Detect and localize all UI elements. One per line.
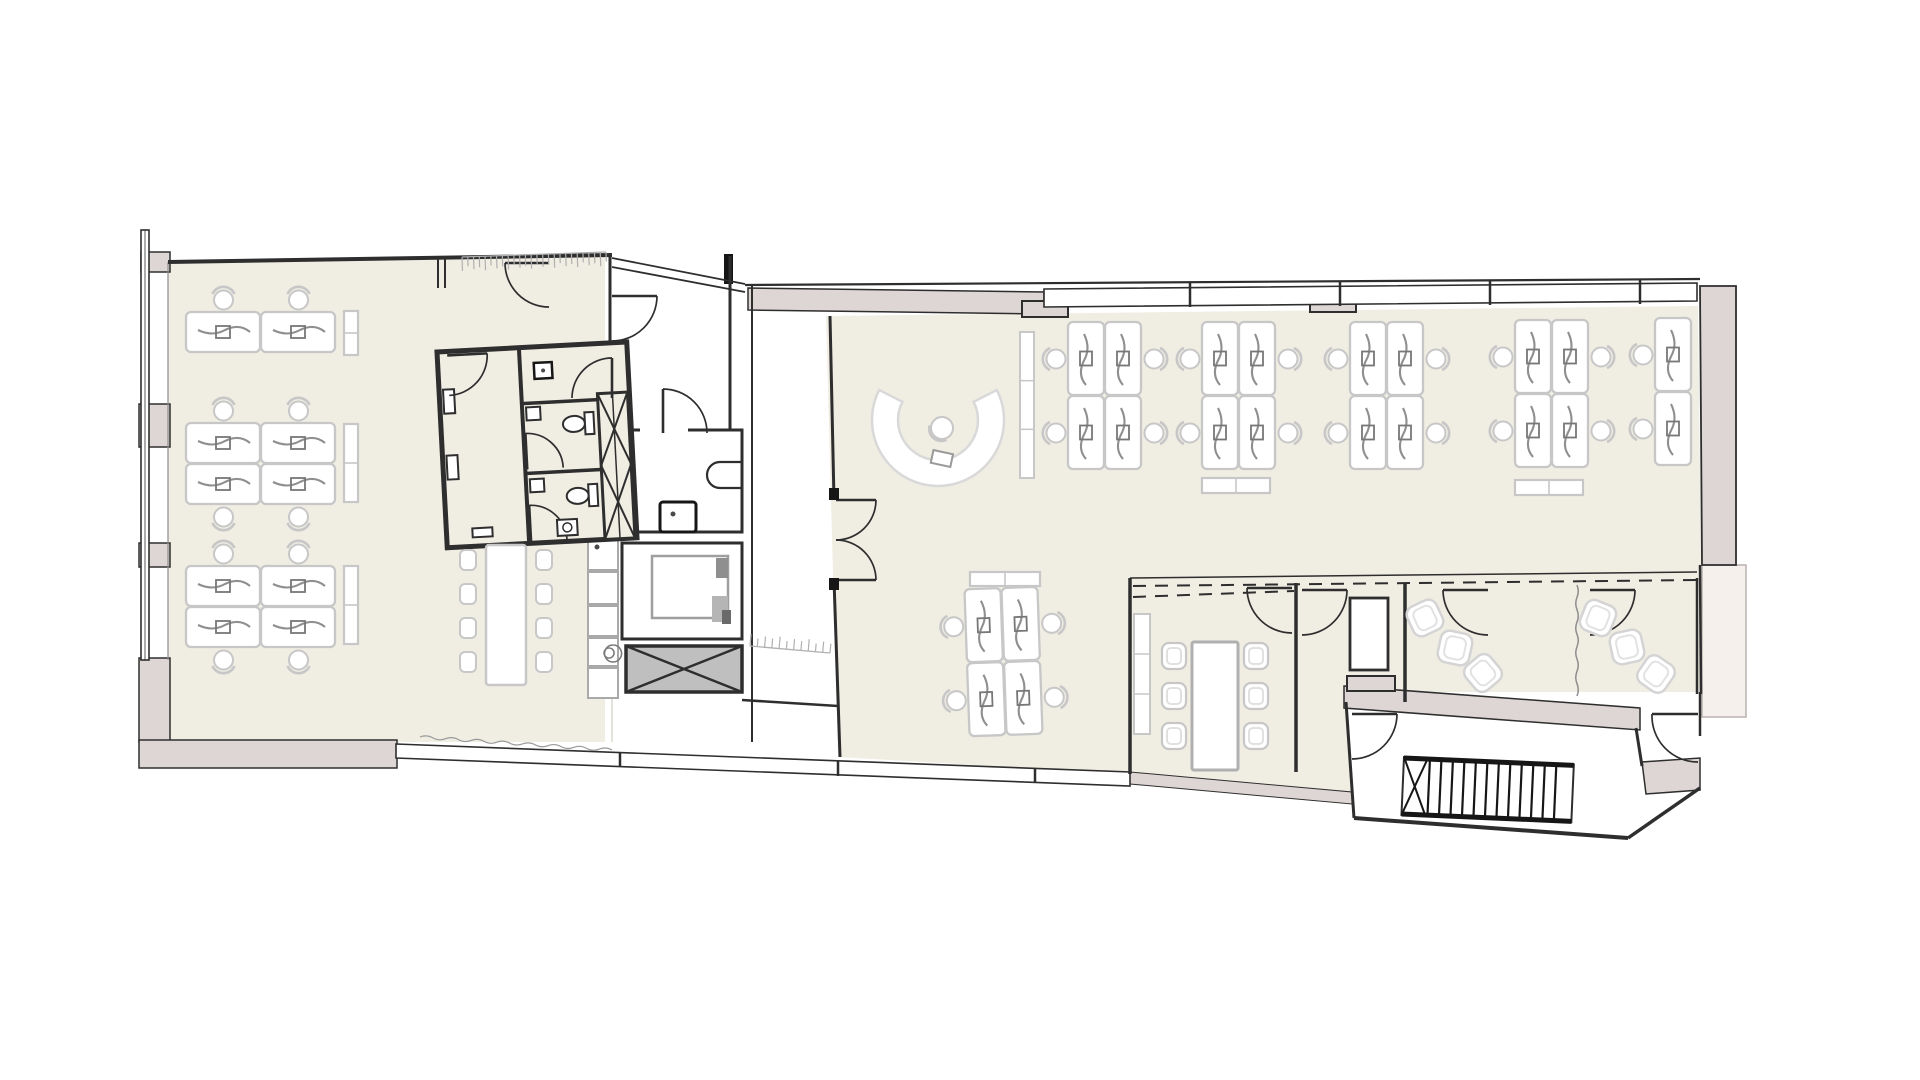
office-chair: [288, 287, 310, 310]
chair-seat: [289, 651, 308, 670]
office-chair: [940, 615, 963, 638]
chair-seat: [1279, 424, 1298, 443]
dining-chair: [536, 652, 552, 672]
sink: [526, 407, 541, 421]
chair-frame: [1162, 643, 1186, 669]
sideboard: [970, 572, 1040, 586]
office-chair: [1279, 348, 1302, 370]
dining-table: [486, 545, 526, 685]
chair-seat: [214, 402, 233, 421]
chair-seat: [1494, 348, 1513, 367]
chair-seat: [1047, 350, 1066, 369]
office-chair: [213, 651, 235, 674]
conference-chair: [1244, 723, 1268, 749]
hatch-tick: [786, 641, 787, 649]
office-chair: [1592, 346, 1615, 368]
staircase: [1401, 757, 1573, 822]
lounge-frame: [1436, 629, 1474, 667]
office-chair: [1043, 422, 1066, 444]
layer-wc-block: [437, 342, 637, 548]
chair-frame: [1244, 723, 1268, 749]
wall-panel: [446, 455, 458, 480]
office-chair: [1490, 420, 1513, 442]
office-chair: [1042, 612, 1065, 635]
window-band: [1044, 283, 1697, 307]
chair-seat: [214, 545, 233, 564]
cabinet: [1134, 614, 1150, 734]
toilet-tank: [588, 484, 598, 506]
hatch-tick: [757, 639, 758, 647]
office-chair: [1145, 422, 1168, 444]
kitchen-counter: [588, 668, 618, 698]
chair-seat: [1044, 687, 1064, 707]
dining-chair: [460, 618, 476, 638]
floorplan-page: [0, 0, 1920, 1080]
door-leaf: [829, 488, 839, 500]
chair-seat: [1181, 350, 1200, 369]
office-chair: [1279, 422, 1302, 444]
chair-frame: [1162, 723, 1186, 749]
wall-marker: [1347, 676, 1395, 691]
chair-seat: [1181, 424, 1200, 443]
conference-chair: [1162, 643, 1186, 669]
sink: [530, 479, 545, 493]
sink-dot: [595, 545, 600, 550]
office-chair: [288, 541, 310, 564]
chair-seat: [1592, 422, 1611, 441]
terrace-floor: [1702, 565, 1746, 717]
hatch-tick: [830, 644, 831, 653]
shelf: [472, 527, 492, 537]
chair-seat: [289, 291, 308, 310]
lounge-frame: [1608, 628, 1646, 666]
sideboard: [344, 311, 358, 355]
chair-seat: [289, 402, 308, 421]
office-chair: [1427, 348, 1450, 370]
kitchen-counter: [588, 572, 618, 604]
office-chair: [1592, 420, 1615, 442]
lounge-chair: [1436, 629, 1474, 667]
sideboard: [344, 424, 358, 502]
cabinet: [1020, 332, 1034, 478]
lounge-chair: [1608, 628, 1646, 666]
dining-chair: [460, 584, 476, 604]
office-chair: [1043, 348, 1066, 370]
exterior-wall: [748, 288, 1044, 314]
chair-seat: [1047, 424, 1066, 443]
kitchen-counter: [588, 538, 618, 570]
office-chair: [1490, 346, 1513, 368]
phone-room-desk: [1350, 598, 1388, 670]
chair-seat: [289, 545, 308, 564]
conference-chair: [1162, 683, 1186, 709]
layer-stairs: [1401, 757, 1573, 822]
chair-seat: [1329, 424, 1348, 443]
cabinet-body: [1020, 332, 1034, 478]
dining-chair: [460, 550, 476, 570]
office-chair: [1427, 422, 1450, 444]
conference-chair: [1244, 643, 1268, 669]
sideboard: [1515, 480, 1583, 495]
office-chair: [1145, 348, 1168, 370]
office-chair: [213, 287, 235, 310]
chair-seat: [946, 691, 966, 711]
kitchen-counter: [588, 606, 618, 636]
sideboard: [344, 566, 358, 644]
office-chair: [1325, 348, 1348, 370]
hatch-tick: [815, 644, 816, 652]
office-chair: [288, 398, 310, 421]
washer: [557, 519, 578, 536]
conference-chair: [1162, 723, 1186, 749]
fitting: [722, 610, 731, 624]
chair-frame: [1244, 683, 1268, 709]
chair-seat: [214, 291, 233, 310]
hatch-tick: [801, 641, 802, 650]
toilet: [563, 415, 586, 432]
exterior-wall: [139, 658, 170, 742]
toilet-tank: [584, 412, 594, 434]
drain-dot: [671, 512, 676, 517]
office-chair: [213, 398, 235, 421]
exterior-wall: [1700, 286, 1736, 565]
office-chair: [213, 541, 235, 564]
basin: [660, 502, 696, 532]
office-chair: [288, 651, 310, 674]
chair-frame: [1244, 643, 1268, 669]
chair-seat: [1634, 420, 1653, 439]
office-chair: [1177, 348, 1200, 370]
office-chair: [1177, 422, 1200, 444]
exterior-wall: [139, 740, 397, 768]
chair-seat: [214, 651, 233, 670]
chair-seat: [1042, 613, 1062, 633]
conference-table: [1192, 642, 1238, 770]
door-leaf: [829, 578, 839, 590]
office-chair: [1044, 686, 1067, 709]
wall: [1700, 565, 1701, 694]
cabinet-body: [1134, 614, 1150, 734]
chair-seat: [1145, 350, 1164, 369]
conference-chair: [1244, 683, 1268, 709]
hatch-tick: [772, 639, 773, 648]
office-chair: [213, 508, 235, 531]
chair-seat: [1592, 348, 1611, 367]
wc-block-rotated: [437, 342, 637, 548]
dining-chair: [536, 584, 552, 604]
office-chair: [288, 508, 310, 531]
dining-chair: [536, 550, 552, 570]
chair-seat: [944, 617, 964, 637]
chair-seat: [1427, 424, 1446, 443]
stair-wall: [1642, 758, 1700, 794]
office-chair: [1325, 422, 1348, 444]
chair-frame: [1162, 683, 1186, 709]
office-chair: [943, 689, 966, 712]
chair-seat: [1145, 424, 1164, 443]
fitting: [716, 558, 728, 578]
chair-seat: [1494, 422, 1513, 441]
dining-chair: [536, 618, 552, 638]
office-chair: [1630, 344, 1653, 366]
sideboard: [1202, 478, 1270, 493]
floorplan-drawing: [0, 0, 1920, 1080]
chair-seat: [1427, 350, 1446, 369]
toilet: [566, 487, 589, 504]
dining-chair: [460, 652, 476, 672]
chair-seat: [214, 508, 233, 527]
office-chair: [1630, 418, 1653, 440]
wall-panel: [443, 389, 455, 414]
chair-seat: [289, 508, 308, 527]
chair-seat: [1329, 350, 1348, 369]
chair-seat: [1634, 346, 1653, 365]
reception-monitor: [931, 450, 953, 467]
chair-seat: [1279, 350, 1298, 369]
